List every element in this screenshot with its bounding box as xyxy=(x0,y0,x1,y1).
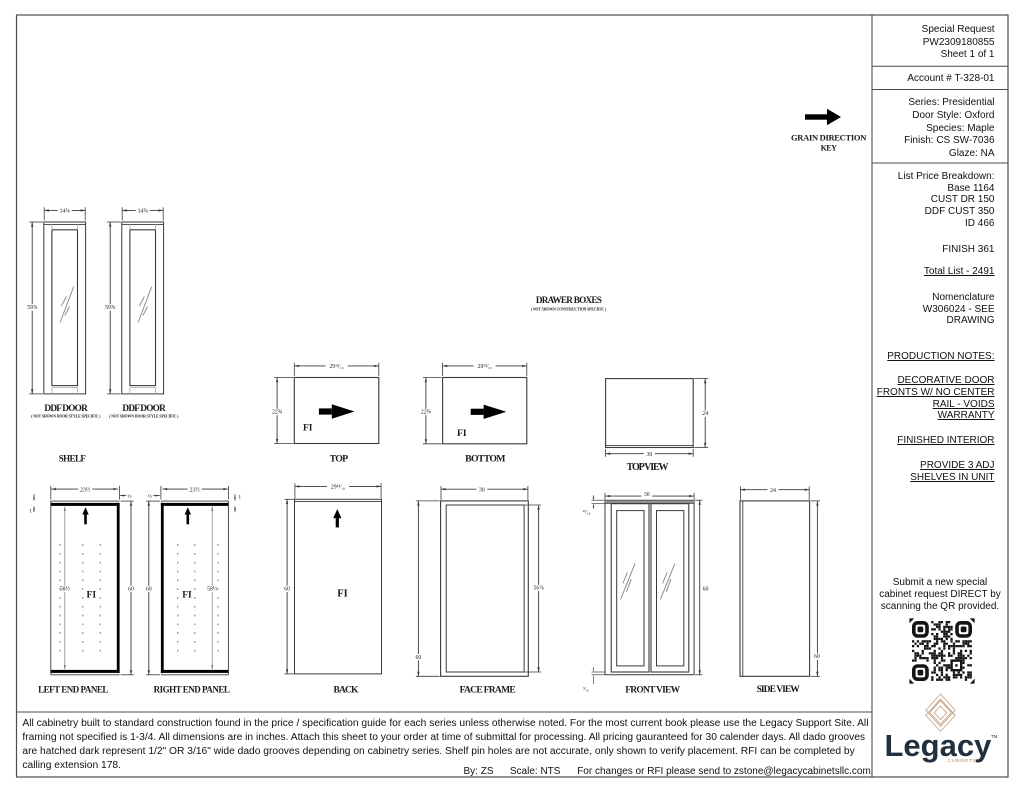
svg-text:GRAIN DIRECTION: GRAIN DIRECTION xyxy=(791,133,867,143)
svg-text:24: 24 xyxy=(702,411,708,417)
svg-text:FI: FI xyxy=(182,591,192,601)
svg-text:FRONT VIEW: FRONT VIEW xyxy=(625,685,680,695)
svg-text:FI: FI xyxy=(337,589,348,600)
svg-text:BOTTOM: BOTTOM xyxy=(465,454,505,465)
svg-text:¹⁵⁄₁₆: ¹⁵⁄₁₆ xyxy=(583,510,591,516)
svg-text:( NOT SHOWN CONSTRUCTION SPECI: ( NOT SHOWN CONSTRUCTION SPECIFIC ) xyxy=(531,307,607,311)
svg-text:FI: FI xyxy=(87,591,97,601)
svg-text:³⁄₁₆: ³⁄₁₆ xyxy=(583,686,589,692)
svg-text:1: 1 xyxy=(29,509,32,515)
svg-text:( NOT SHOWN DOOR STYLE SPECIFI: ( NOT SHOWN DOOR STYLE SPECIFIC ) xyxy=(109,414,179,418)
svg-text:( NOT SHOWN DOOR STYLE SPECIFI: ( NOT SHOWN DOOR STYLE SPECIFIC ) xyxy=(31,414,101,418)
svg-text:FACE FRAME: FACE FRAME xyxy=(460,686,516,696)
svg-text:½: ½ xyxy=(127,493,131,500)
svg-text:SIDE VIEW: SIDE VIEW xyxy=(757,685,801,695)
svg-text:TOP VIEW: TOP VIEW xyxy=(627,462,669,473)
svg-text:1: 1 xyxy=(238,494,241,500)
svg-text:30: 30 xyxy=(647,452,653,458)
svg-text:14⅝: 14⅝ xyxy=(60,209,71,215)
svg-text:TOP: TOP xyxy=(330,454,349,465)
svg-text:SHELF: SHELF xyxy=(59,453,87,463)
svg-text:23½: 23½ xyxy=(80,486,91,493)
svg-text:60: 60 xyxy=(416,655,422,661)
svg-text:FI: FI xyxy=(303,423,313,433)
svg-text:60: 60 xyxy=(703,586,709,592)
svg-text:DDF DOOR: DDF DOOR xyxy=(44,404,88,414)
svg-text:60: 60 xyxy=(814,654,820,660)
svg-text:22¾: 22¾ xyxy=(421,409,432,416)
svg-text:FI: FI xyxy=(457,429,467,439)
svg-text:DRAWER BOXES: DRAWER BOXES xyxy=(536,295,602,305)
svg-text:14⅝: 14⅝ xyxy=(138,209,149,215)
svg-text:58½: 58½ xyxy=(207,586,218,593)
svg-text:24: 24 xyxy=(770,488,776,494)
svg-text:58½: 58½ xyxy=(60,586,71,593)
svg-text:30: 30 xyxy=(479,487,485,493)
svg-text:60: 60 xyxy=(146,587,152,593)
svg-text:DDF DOOR: DDF DOOR xyxy=(122,404,166,414)
svg-text:LEFT END PANEL: LEFT END PANEL xyxy=(38,685,108,695)
svg-text:29¹³⁄₁₆: 29¹³⁄₁₆ xyxy=(331,485,345,491)
svg-text:60: 60 xyxy=(284,587,290,593)
svg-text:29¹³⁄₁₆: 29¹³⁄₁₆ xyxy=(478,364,492,370)
svg-text:KEY: KEY xyxy=(821,144,838,153)
svg-text:30: 30 xyxy=(644,492,650,498)
svg-text:60: 60 xyxy=(128,587,134,593)
svg-text:BACK: BACK xyxy=(333,686,359,696)
svg-text:59⅞: 59⅞ xyxy=(105,305,116,311)
svg-text:29¹³⁄₁₆: 29¹³⁄₁₆ xyxy=(329,364,343,370)
svg-text:59⅞: 59⅞ xyxy=(27,305,38,311)
svg-text:23½: 23½ xyxy=(190,486,201,493)
svg-text:½: ½ xyxy=(148,493,152,500)
svg-text:56⅞: 56⅞ xyxy=(534,586,545,592)
svg-text:RIGHT END PANEL: RIGHT END PANEL xyxy=(154,685,230,695)
svg-text:22¾: 22¾ xyxy=(272,409,283,416)
